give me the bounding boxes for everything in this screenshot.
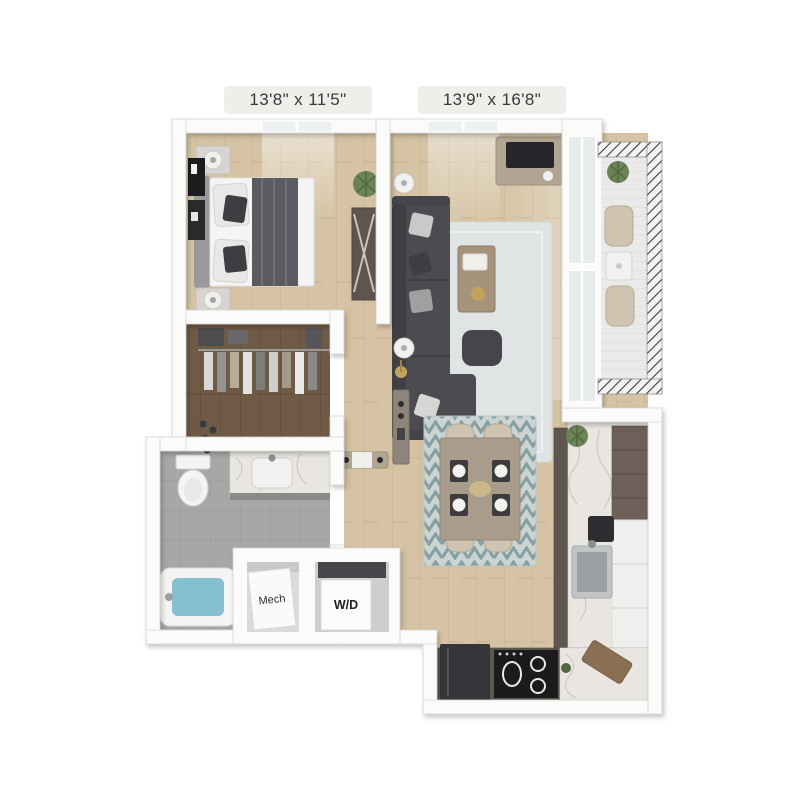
storage-box (228, 330, 248, 344)
faucet (269, 455, 276, 462)
balcony-railing-right (647, 142, 662, 394)
living-dimensions-label: 13'9" x 16'8" (443, 90, 541, 109)
counter-plant (566, 425, 588, 447)
balcony (598, 142, 662, 394)
dimension-labels: 13'8" x 11'5" 13'9" x 16'8" (224, 86, 566, 114)
mech-closet: Mech (247, 562, 299, 632)
tray (463, 254, 487, 270)
upper-cabinets (612, 426, 648, 520)
dining-area (424, 416, 536, 566)
tub-faucet (165, 593, 173, 601)
balcony-plant (607, 161, 629, 183)
balcony-railing-bottom (598, 379, 662, 394)
balcony-chair (606, 286, 634, 326)
tall-white-cabinets (612, 520, 648, 652)
coffee-table (458, 246, 495, 312)
hanging-clothes (204, 352, 317, 394)
centerpiece (469, 481, 491, 497)
vanity (230, 451, 330, 500)
tv (506, 142, 554, 168)
herbs (561, 663, 571, 673)
bed-blanket (252, 178, 298, 286)
sofa-pillow (408, 212, 434, 238)
decor-vase (543, 171, 553, 181)
accent-ottoman (462, 330, 502, 366)
shelf-bag (306, 328, 322, 348)
entry-console (338, 452, 388, 468)
sink-basin (252, 458, 292, 488)
sofa-pillow (409, 289, 434, 314)
bed (194, 176, 314, 288)
washer-dryer-closet: W/D (315, 562, 389, 632)
tv-console (496, 137, 562, 185)
toilet (176, 455, 210, 506)
vanity-cabinet-edge (230, 493, 330, 500)
floorplan-canvas: Mech W/D 13'8" x 11'5" 13'9" x 16'8" (0, 0, 800, 800)
decor-bowl (471, 287, 485, 301)
kitchen-sink (572, 540, 612, 598)
faucet (588, 540, 596, 548)
storage-box (198, 328, 224, 346)
cooktop-range (494, 650, 558, 698)
bedroom-dimensions-label: 13'8" x 11'5" (249, 90, 346, 109)
wd-label: W/D (334, 598, 358, 612)
accent-pillow (223, 245, 248, 273)
floor-lamp-bottom (394, 338, 414, 358)
dresser (352, 208, 376, 300)
coffee-maker (588, 516, 614, 542)
hall-console-table (393, 390, 409, 464)
bathtub (160, 568, 236, 626)
base-cabinets-right (554, 428, 568, 652)
bedroom-plant (353, 171, 379, 197)
floor-lamp-top (394, 173, 414, 193)
accent-pillow (222, 195, 247, 224)
floorplan-svg: Mech W/D 13'8" x 11'5" 13'9" x 16'8" (0, 0, 800, 800)
utility-closets: Mech W/D (247, 562, 389, 632)
tub-water (172, 578, 224, 616)
appliance-back (318, 562, 386, 578)
balcony-chair (605, 206, 633, 246)
